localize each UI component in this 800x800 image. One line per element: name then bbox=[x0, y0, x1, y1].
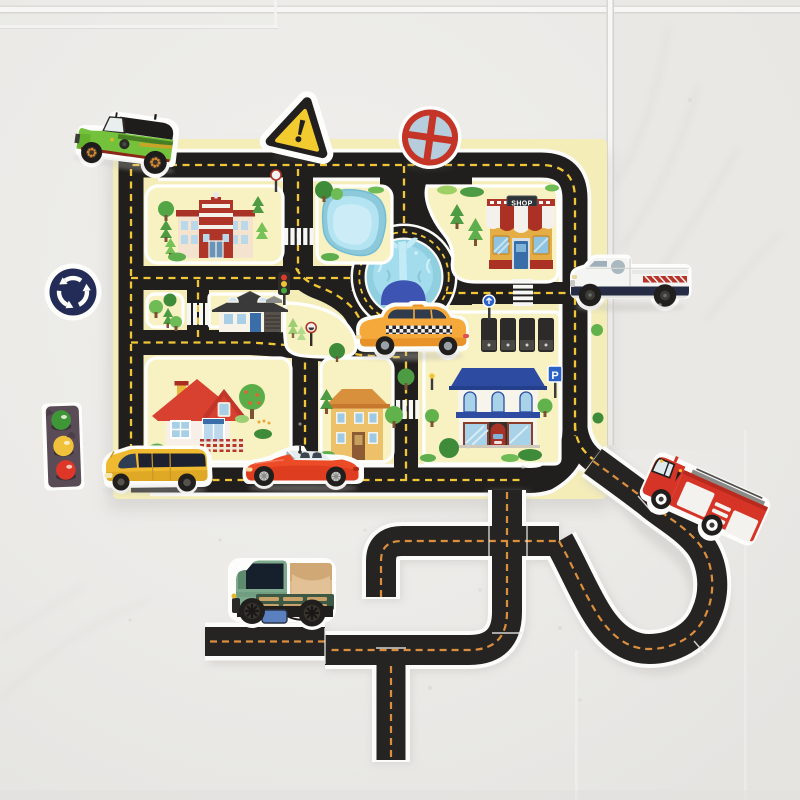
svg-text:P: P bbox=[551, 370, 558, 382]
